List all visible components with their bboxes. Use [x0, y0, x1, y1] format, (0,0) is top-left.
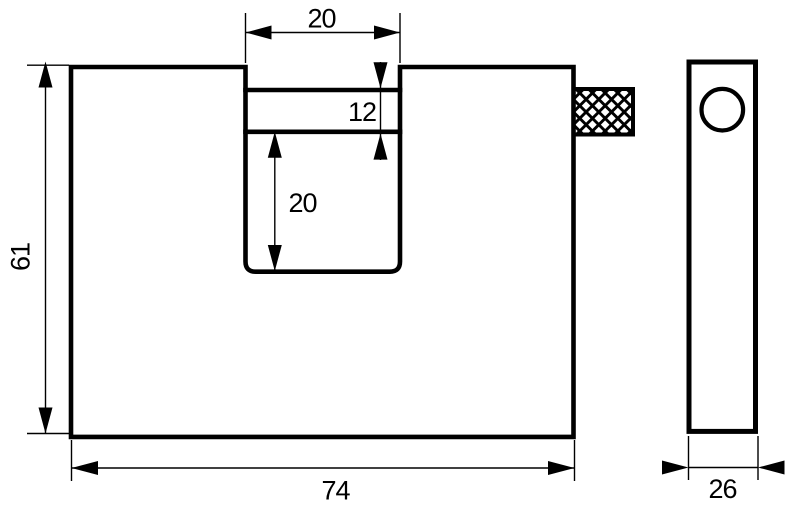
svg-text:20: 20 — [307, 4, 335, 34]
svg-text:61: 61 — [6, 243, 36, 271]
svg-text:12: 12 — [348, 97, 376, 127]
svg-text:74: 74 — [321, 476, 350, 506]
svg-text:20: 20 — [289, 188, 317, 218]
svg-text:26: 26 — [708, 474, 736, 504]
